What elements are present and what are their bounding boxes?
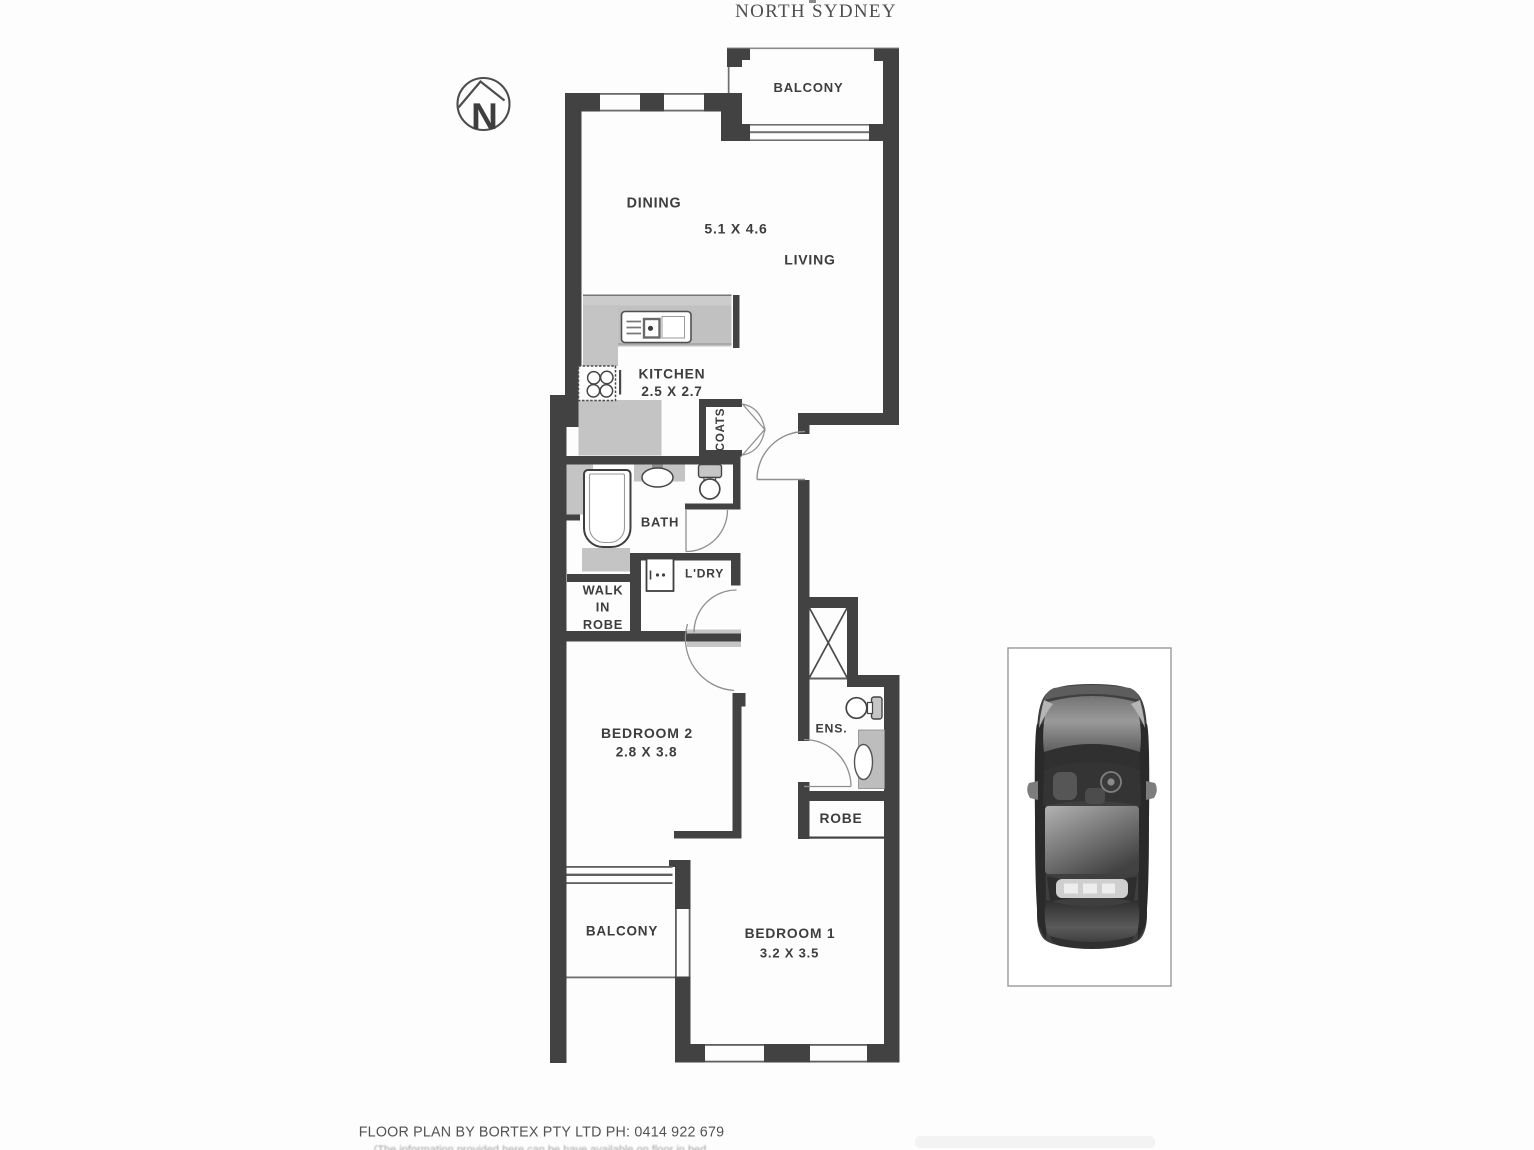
svg-text:BEDROOM 1: BEDROOM 1 bbox=[745, 926, 836, 941]
svg-text:3.2 X 3.5: 3.2 X 3.5 bbox=[760, 946, 819, 961]
svg-text:KITCHEN: KITCHEN bbox=[639, 367, 706, 382]
svg-text:FLOOR PLAN BY BORTEX PTY LTD P: FLOOR PLAN BY BORTEX PTY LTD PH: 0414 92… bbox=[359, 1125, 725, 1141]
svg-text:L'DRY: L'DRY bbox=[685, 567, 724, 581]
svg-text:ROBE: ROBE bbox=[583, 617, 623, 632]
svg-text:NORTH SYDNEY: NORTH SYDNEY bbox=[735, 1, 897, 22]
svg-text:ENS.: ENS. bbox=[816, 722, 848, 736]
svg-text:N: N bbox=[471, 96, 498, 137]
svg-text:BATH: BATH bbox=[641, 515, 679, 530]
svg-text:ROBE: ROBE bbox=[819, 811, 862, 826]
svg-text:BEDROOM 2: BEDROOM 2 bbox=[601, 725, 693, 741]
svg-text:(The information provided here: (The information provided here can be ha… bbox=[374, 1144, 707, 1150]
svg-text:BALCONY: BALCONY bbox=[774, 80, 844, 95]
svg-text:2.8 X 3.8: 2.8 X 3.8 bbox=[616, 745, 678, 760]
svg-text:WALK: WALK bbox=[583, 583, 624, 598]
svg-text:2.5 X 2.7: 2.5 X 2.7 bbox=[641, 384, 702, 399]
svg-text:LIVING: LIVING bbox=[784, 252, 835, 268]
svg-text:IN: IN bbox=[596, 600, 610, 615]
svg-text:BALCONY: BALCONY bbox=[586, 924, 658, 939]
svg-text:5.1 X 4.6: 5.1 X 4.6 bbox=[704, 221, 767, 237]
svg-text:COATS: COATS bbox=[715, 408, 727, 451]
svg-text:DINING: DINING bbox=[627, 196, 682, 212]
